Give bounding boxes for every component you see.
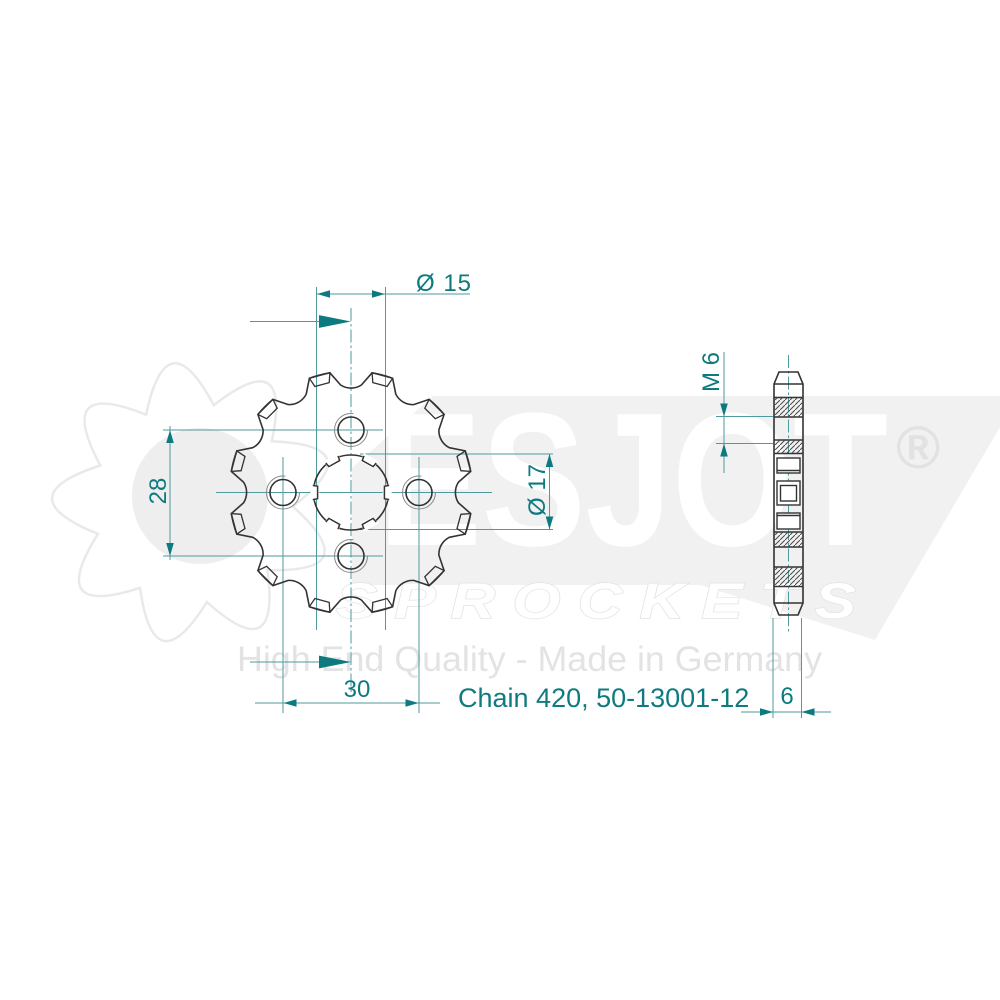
registered-trademark-symbol: ® bbox=[896, 414, 940, 481]
hatch-band bbox=[775, 398, 803, 418]
hatch-band bbox=[775, 567, 803, 587]
hatch-band bbox=[775, 440, 803, 454]
dimension-hole-spacing-horizontal: 30 bbox=[344, 676, 371, 703]
sprocket-technical-drawing: ESJOT ® S P R O C K E T S High End Quali… bbox=[0, 0, 1000, 1000]
sprocket-side-view bbox=[774, 372, 803, 615]
dimension-pilot-diameter: Ø 15 bbox=[416, 270, 472, 297]
dimension-thread: M 6 bbox=[698, 352, 725, 392]
dimension-bore-diameter: Ø 17 bbox=[524, 464, 551, 516]
dimension-width: 6 bbox=[780, 683, 793, 710]
hatch-band bbox=[775, 532, 803, 547]
brand-wordmark: ESJOT bbox=[378, 374, 888, 586]
dimension-hole-spacing-vertical: 28 bbox=[145, 478, 172, 505]
part-number: Chain 420, 50-13001-12 bbox=[458, 683, 749, 713]
bore-section-inner bbox=[781, 486, 797, 502]
